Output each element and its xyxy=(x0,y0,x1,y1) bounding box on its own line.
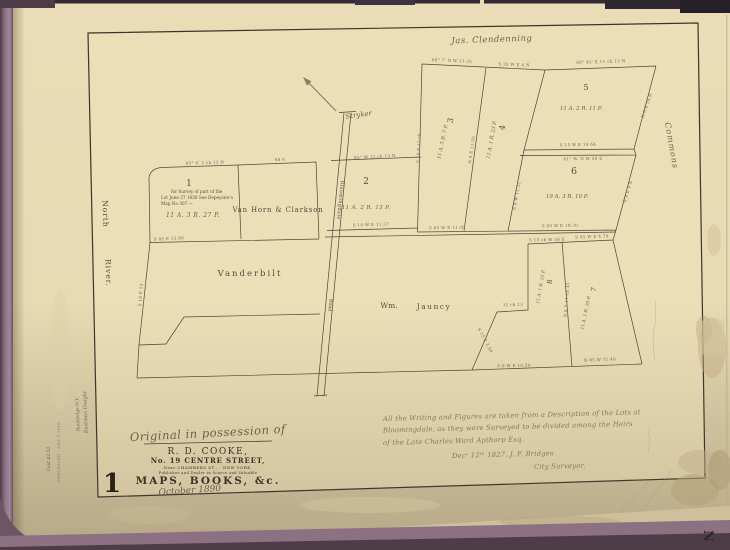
bearing-label: 68 6 xyxy=(275,157,286,162)
margin-pencil-note-2: Rockledge N.Y. xyxy=(74,396,81,432)
bearing-label: 61° W. N W 58 E xyxy=(563,156,602,162)
parcel-1-note-1: for Survey of part of the xyxy=(171,189,223,194)
binding-shadow xyxy=(13,0,25,550)
top-strip-fragment xyxy=(0,0,55,8)
label-road-word: Road xyxy=(326,299,333,312)
top-strip-fragment xyxy=(680,0,730,13)
bearing-label: S 8 W E 10.50 xyxy=(497,363,531,369)
scanned-map-page: N Jas. Clendenning Stryker Commons North… xyxy=(0,0,730,550)
stain xyxy=(707,224,721,256)
parcel-5-area: 11 A. 2 R. 11 P. xyxy=(560,106,602,112)
imprint-street: No. 19 CENTRE STREET, xyxy=(151,456,266,465)
parcel-1-area: 11 A. 3 R. 27 P. xyxy=(166,212,220,219)
stain xyxy=(50,290,70,410)
bearing-label: S 15 W E 19.64 xyxy=(560,142,597,148)
label-river: River. xyxy=(104,259,114,287)
page-edge-line xyxy=(726,15,728,505)
parcel-2-number: 2 xyxy=(363,177,369,187)
parcel-6-area: 19 A. 3 R. 10 P. xyxy=(546,194,588,200)
parcel-5-number: 5 xyxy=(583,83,588,92)
top-strip-tear xyxy=(480,0,484,10)
bearing-label: 11 ch 13 xyxy=(503,302,524,307)
label-van-horn-clarkson: Van Horn & Clarkson xyxy=(231,206,323,214)
bearing-label: S 15 ch W 58 E xyxy=(529,237,565,243)
survey-map-canvas: N Jas. Clendenning Stryker Commons North… xyxy=(0,0,730,550)
parcel-1-note-3: Map No 307 — xyxy=(161,201,193,206)
parcel-1-number: 1 xyxy=(186,179,192,189)
stain xyxy=(300,497,440,513)
top-strip-fragment xyxy=(355,0,415,5)
cost-annotation: Cost $2.50 xyxy=(46,447,52,472)
label-vanderbilt: Vanderbilt xyxy=(217,269,283,279)
parcel-6-number: 6 xyxy=(571,166,577,177)
label-north: North xyxy=(101,200,111,228)
label-jauncey-first: Wm. xyxy=(380,301,397,310)
bearing-label: S 85 W E 11 ch xyxy=(429,225,465,231)
parcel-2-area: 11 A. 2 R. 13 P. xyxy=(342,205,391,211)
parcel-1-note-2: Lot June 27 1836 See Depeyster's xyxy=(161,195,233,200)
tape-remnant xyxy=(696,319,726,355)
imprint-near: Near CHAMBERS ST., - NEW YORK. xyxy=(163,465,252,470)
label-jauncey-last: Jauncy xyxy=(416,302,452,311)
bearing-label: S 85 W E 19.30 xyxy=(542,223,579,229)
binding-strip xyxy=(0,0,13,550)
stain xyxy=(110,506,190,524)
surveyor-note-title: City Surveyor. xyxy=(534,462,586,471)
sheet-number: 1 xyxy=(103,469,121,499)
next-page-letter: N xyxy=(700,530,715,542)
purchase-stamp: PURCHASED · AUG 7 1916 xyxy=(57,422,61,482)
